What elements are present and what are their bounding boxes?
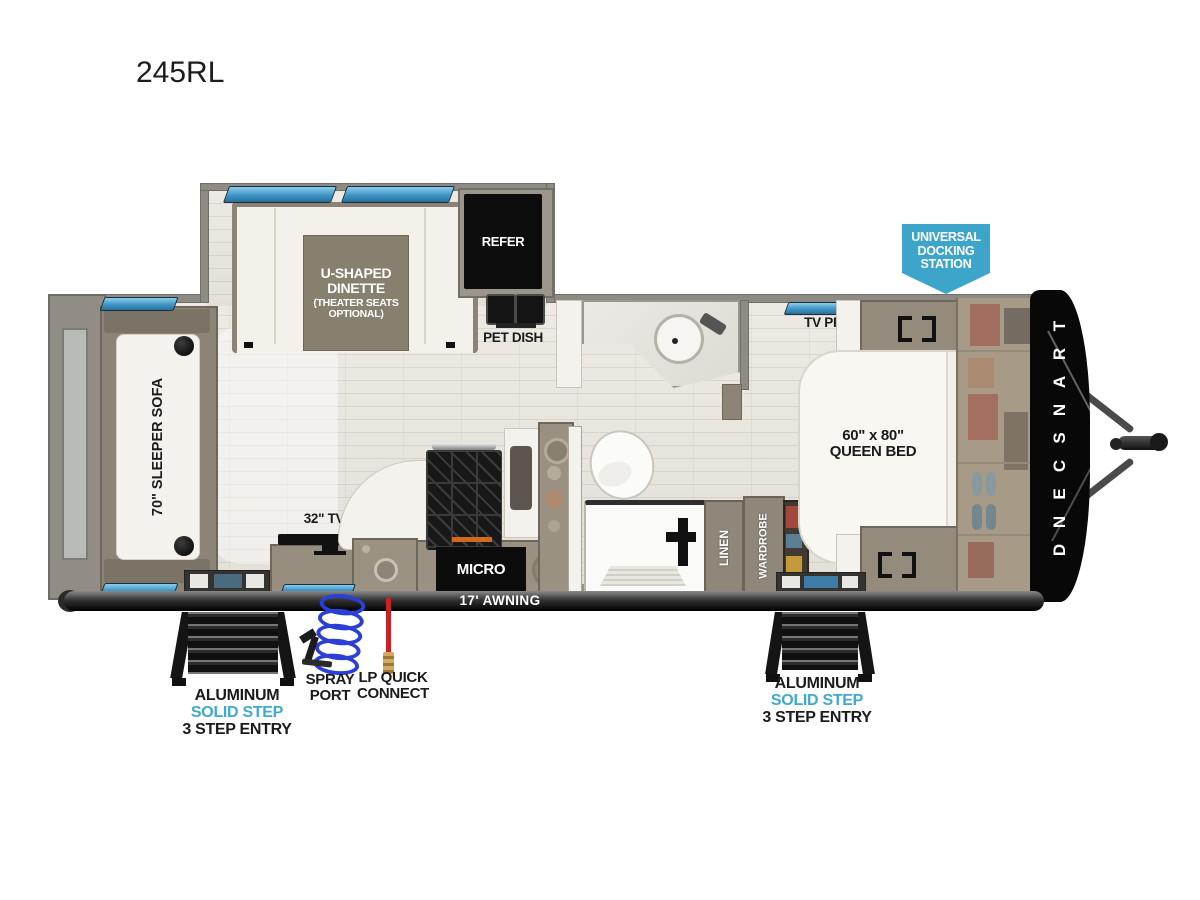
hitch-ball-cap <box>1150 433 1168 451</box>
cabinet-knob-small <box>362 545 370 553</box>
sofa-arm-top <box>104 309 210 333</box>
brand-logo: TRANSCEND <box>1047 312 1073 564</box>
entry-door-panel <box>782 576 800 588</box>
lp-hose <box>386 598 391 654</box>
sofa-cupholder-bottom <box>174 536 194 556</box>
dinette-cushion-seam-left <box>274 208 276 344</box>
wardrobe-label: WARDROBE <box>758 513 770 578</box>
step-label-left: ALUMINUM SOLID STEP 3 STEP ENTRY <box>172 688 302 738</box>
step-left-line2: SOLID STEP <box>172 705 302 722</box>
dinette-foot-right <box>446 342 455 348</box>
dinette-cushion-seam-right <box>424 208 426 344</box>
counter-circle-2 <box>547 466 561 480</box>
entry-door-window <box>214 574 242 588</box>
refer-label: REFER <box>482 235 525 249</box>
dinette-label-line2: DINETTE <box>327 281 385 296</box>
sleeper-sofa-label: 70" SLEEPER SOFA <box>150 378 166 516</box>
sleeper-sofa: 70" SLEEPER SOFA <box>116 334 200 560</box>
lp-line2: CONNECT <box>352 686 434 702</box>
entry-door-panel <box>246 574 264 588</box>
cabinet-pull-icon <box>898 316 912 342</box>
pet-bowl-stand <box>496 323 536 328</box>
entry-door-window <box>804 576 838 588</box>
rear-window <box>62 328 88 560</box>
queen-bed-name: QUEEN BED <box>806 444 940 460</box>
linen-cabinet: LINEN <box>704 500 744 596</box>
living-area-rug <box>208 326 338 564</box>
queen-bed-label: 60" x 80" QUEEN BED <box>806 428 940 460</box>
shower-tray <box>600 566 686 586</box>
badge-line3: STATION <box>902 258 990 272</box>
dinette-foot-left <box>244 342 253 348</box>
refrigerator: REFER <box>464 194 542 289</box>
badge-line2: DOCKING <box>902 245 990 259</box>
hitch-jack <box>1110 438 1122 450</box>
queen-bed-size: 60" x 80" <box>806 428 940 444</box>
linen-label: LINEN <box>717 530 731 566</box>
pet-dish-label: PET DISH <box>460 331 566 345</box>
awning-label: 17' AWNING <box>420 594 580 608</box>
cabinet-pull-icon <box>878 552 892 578</box>
step-left-treads <box>188 612 278 674</box>
kitchen-sink-basin <box>510 446 532 510</box>
entry-door-panel <box>842 576 858 588</box>
wardrobe-overlay <box>958 298 1038 592</box>
page-title: 245RL <box>136 56 224 90</box>
lp-line1: LP QUICK <box>352 670 434 686</box>
dinette-window-right <box>341 186 455 203</box>
stove-cooktop <box>426 450 502 550</box>
badge-line1: UNIVERSAL <box>902 231 990 245</box>
dinette-label-line1: U-SHAPED <box>321 266 392 281</box>
step-right-line1: ALUMINUM <box>752 676 882 693</box>
shower-fixture-bar <box>678 518 688 566</box>
front-wardrobe <box>956 298 1038 592</box>
tv-stand-base <box>314 551 346 555</box>
cabinet-pull-icon <box>922 316 936 342</box>
vanity-drain <box>672 338 678 344</box>
stove-handle <box>432 443 496 450</box>
bathroom-bedroom-wall <box>740 300 749 390</box>
step-left-line3: 3 STEP ENTRY <box>172 722 302 739</box>
towel-bar <box>452 537 492 542</box>
microwave: MICRO <box>436 547 526 592</box>
universal-docking-station-badge: UNIVERSAL DOCKING STATION <box>902 224 990 294</box>
sofa-cupholder-top <box>174 336 194 356</box>
counter-circle-1 <box>544 438 570 464</box>
step-foot <box>172 678 186 686</box>
cabinet-knob-large <box>374 558 398 582</box>
counter-circle-3 <box>548 520 560 532</box>
counter-plate <box>545 490 563 508</box>
slideout-wall-left <box>200 183 209 303</box>
entry-door-panel <box>190 574 208 588</box>
step-foot <box>280 678 294 686</box>
step-right-treads <box>782 612 858 670</box>
step-left-line1: ALUMINUM <box>172 688 302 705</box>
bathroom-door-stub <box>722 384 742 420</box>
lp-quick-connect-label: LP QUICK CONNECT <box>352 670 434 702</box>
cabinet-pull-icon <box>902 552 916 578</box>
step-label-right: ALUMINUM SOLID STEP 3 STEP ENTRY <box>752 676 882 726</box>
rear-window-top <box>99 297 178 311</box>
shower-fixture-valve <box>666 532 696 542</box>
kitchen-bath-divider-wall <box>568 426 582 594</box>
pet-bowl-right <box>515 294 545 325</box>
step-right-line3: 3 STEP ENTRY <box>752 710 882 727</box>
floorplan-canvas: 245RL U-SHAPED DINETTE (THEATER SEATS OP… <box>0 0 1200 900</box>
dinette-table: U-SHAPED DINETTE (THEATER SEATS OPTIONAL… <box>303 235 409 351</box>
pet-bowl-left <box>486 294 516 325</box>
dinette-label-line4: OPTIONAL) <box>328 309 383 320</box>
vanity-sink <box>654 314 704 364</box>
front-cap: TRANSCEND <box>1030 290 1090 602</box>
micro-label: MICRO <box>457 562 506 578</box>
dinette-window-left <box>223 186 337 203</box>
step-right-line2: SOLID STEP <box>752 693 882 710</box>
